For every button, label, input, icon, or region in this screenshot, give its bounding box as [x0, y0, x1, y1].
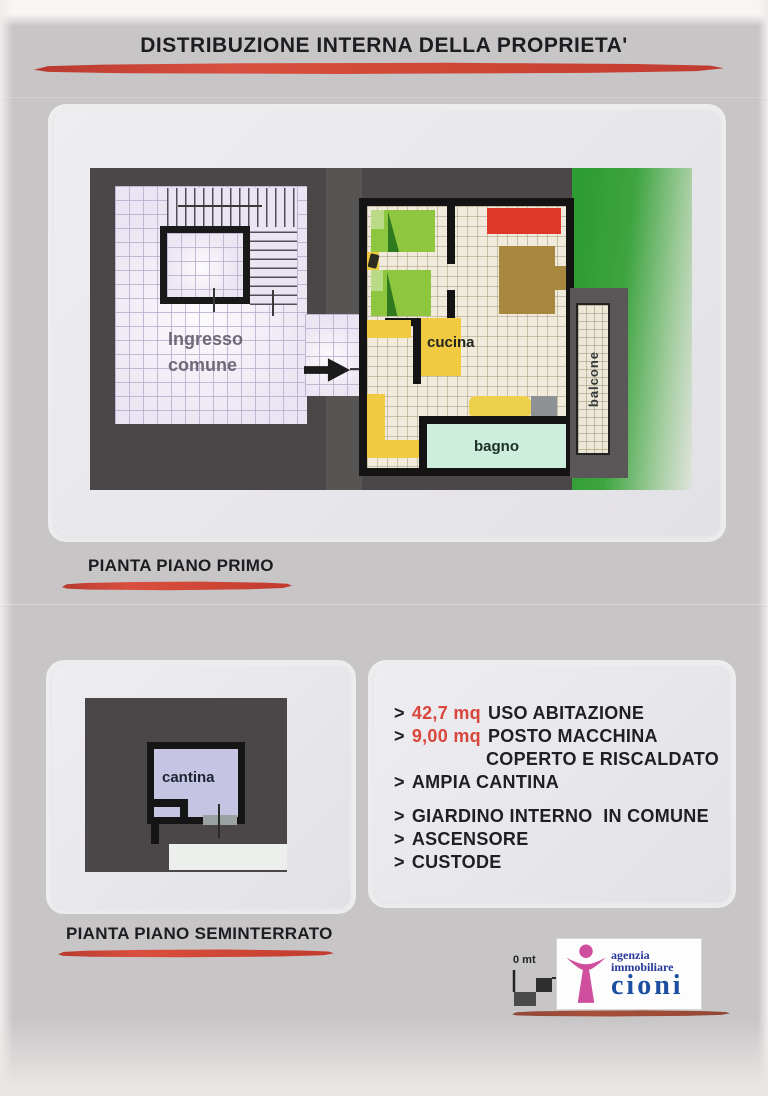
agency-logo: agenzia immobiliare cioni: [556, 938, 702, 1010]
door-mark: [272, 290, 274, 316]
paper-edge-right: [758, 0, 768, 1096]
paper-edge-bottom: [0, 1018, 768, 1096]
bedroom-wall: [447, 206, 455, 264]
paper-edge-left: [0, 0, 13, 1096]
wall-stub: [151, 824, 159, 844]
cantina-door-mark: [218, 804, 220, 838]
plan-seminterrato-frame: cantina: [52, 666, 350, 908]
feature-item: >GIARDINO INTERNO IN COMUNE: [394, 805, 730, 828]
logo-figure-icon: [563, 943, 609, 1005]
stairwell-shaft: [160, 226, 250, 304]
feature-item: >CUSTODE: [394, 851, 730, 874]
bagno-label: bagno: [474, 438, 519, 455]
balcone-floor: balcone: [576, 303, 610, 455]
bullet: >: [394, 829, 405, 849]
floorplan-seminterrato: cantina: [85, 698, 287, 872]
balcone: balcone: [570, 288, 628, 478]
desk-extension: [555, 266, 566, 290]
apartment-unit: cucina bagno: [359, 198, 574, 476]
bullet: >: [394, 772, 405, 792]
feature-text: USO ABITAZIONE: [488, 703, 644, 723]
door-mark: [213, 288, 215, 312]
kitchen-counter-l: [367, 440, 419, 458]
plan-primo-caption: PIANTA PIANO PRIMO: [88, 556, 274, 576]
bagno-room: bagno: [427, 424, 566, 468]
bathtub: [469, 396, 531, 416]
cantina-corridor: [169, 844, 287, 870]
scale-zero-label: 0 mt: [513, 954, 536, 966]
floorplan-primo: Ingresso comune: [90, 168, 692, 490]
bed: [371, 210, 435, 252]
ingresso-label-line1: Ingresso: [168, 326, 243, 352]
bagno-wall: [419, 416, 566, 424]
paper-crease: [0, 97, 768, 100]
scanned-page: DISTRIBUZIONE INTERNA DELLA PROPRIETA' I…: [0, 0, 768, 1096]
feature-item: >42,7 mqUSO ABITAZIONE: [394, 702, 730, 725]
stair-flight-top: [167, 188, 297, 227]
feature-text: AMPIA CANTINA: [412, 772, 559, 792]
feature-item: >ASCENSORE: [394, 828, 730, 851]
kitchen-counter: [367, 320, 411, 338]
feature-item: COPERTO E RISCALDATO: [394, 748, 730, 771]
feature-text: GIARDINO INTERNO IN COMUNE: [412, 806, 709, 826]
balcone-label: balcone: [586, 351, 601, 407]
cantina-label: cantina: [162, 769, 215, 786]
stair-direction-line: [178, 205, 262, 207]
ingresso-label: Ingresso comune: [168, 326, 243, 378]
feature-value: 9,00 mq: [412, 726, 481, 746]
caption-underline-stroke: [62, 581, 292, 591]
bagno-wall: [419, 416, 427, 468]
cucina-label: cucina: [427, 334, 475, 351]
bed: [371, 270, 431, 316]
feature-text: COPERTO E RISCALDATO: [486, 749, 719, 769]
caption-underline-stroke: [58, 949, 334, 958]
appliance: [531, 396, 557, 416]
feature-item: >AMPIA CANTINA: [394, 771, 730, 794]
ingresso-label-line2: comune: [168, 352, 243, 378]
ingresso-corridor: [305, 314, 359, 396]
plan-primo-frame: Ingresso comune: [54, 110, 720, 536]
bullet: >: [394, 703, 405, 723]
features-box: >42,7 mqUSO ABITAZIONE >9,00 mqPOSTO MAC…: [374, 666, 730, 902]
feature-text: POSTO MACCHINA: [488, 726, 658, 746]
bullet: >: [394, 852, 405, 872]
feature-item: >9,00 mqPOSTO MACCHINA: [394, 725, 730, 748]
feature-value: 42,7 mq: [412, 703, 481, 723]
cantina-door-sill: [203, 815, 237, 825]
logo-name: cioni: [611, 973, 684, 999]
paper-edge-top: [0, 0, 768, 26]
cantina-room: cantina: [147, 742, 245, 824]
bullet: >: [394, 726, 405, 746]
kitchen-wall-stub: [413, 318, 421, 384]
logo-text: agenzia immobiliare cioni: [611, 949, 684, 999]
feature-text: ASCENSORE: [412, 829, 529, 849]
plan-seminterrato-caption: PIANTA PIANO SEMINTERRATO: [66, 924, 333, 944]
paper-crease: [0, 604, 768, 607]
feature-text: CUSTODE: [412, 852, 502, 872]
sofa: [487, 208, 561, 234]
desk: [499, 246, 555, 314]
cantina-inner-wall: [180, 799, 188, 817]
page-title: DISTRIBUZIONE INTERNA DELLA PROPRIETA': [0, 34, 768, 58]
bullet: >: [394, 806, 405, 826]
title-underline-stroke: [34, 62, 724, 75]
